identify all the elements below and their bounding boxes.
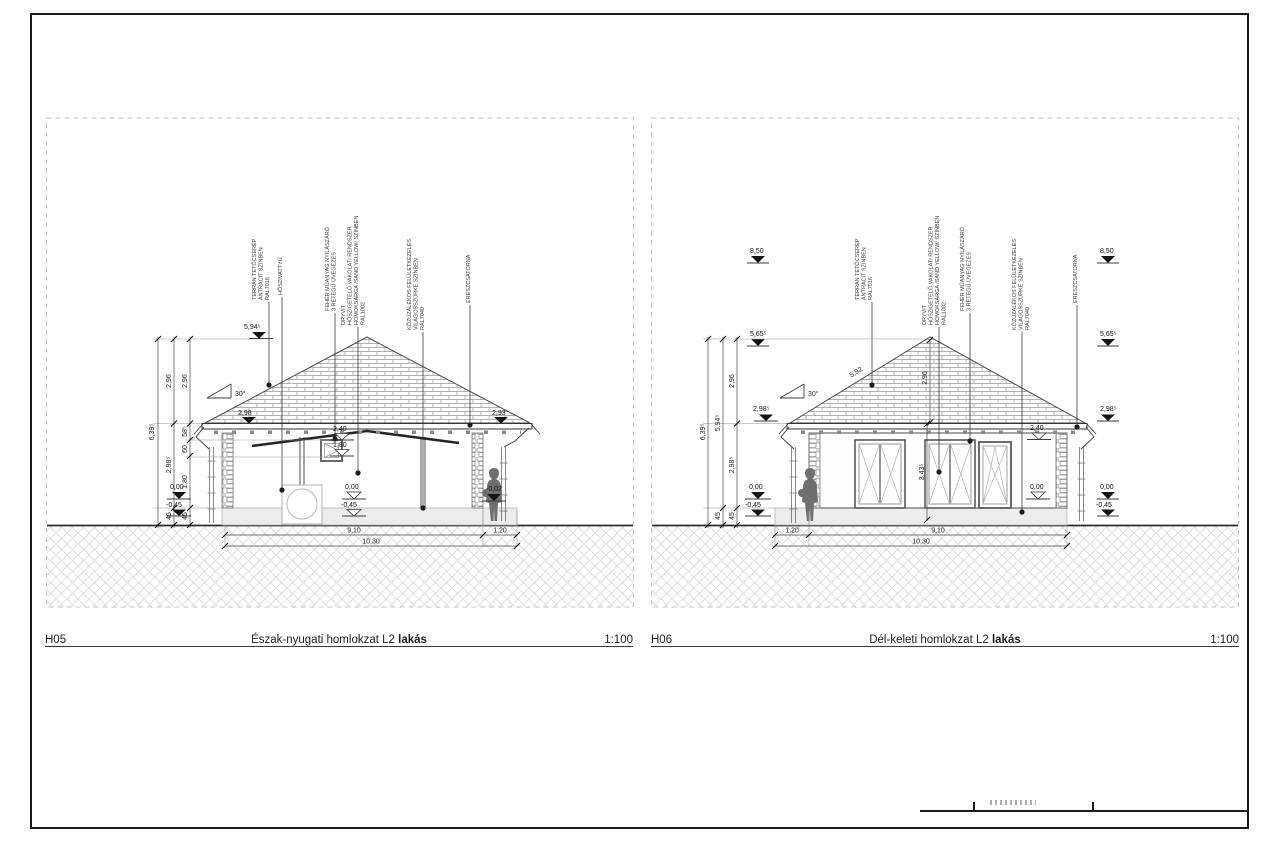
level-label: 2,40	[1030, 425, 1044, 432]
callout-line: DRYVIT	[922, 304, 928, 325]
callout-line: RAL1002	[361, 302, 367, 325]
dim-label: 2,98⁵	[166, 457, 173, 474]
roof-slope-symbol: 30°	[780, 384, 819, 398]
corner-column-right	[472, 433, 483, 508]
callout-line: RAL7040	[420, 307, 426, 330]
fascia-gutter	[202, 424, 532, 430]
roof-slope-length-label: 5,92	[849, 366, 864, 379]
level-marker-hmax-right: 8,50	[1097, 248, 1119, 263]
level-label: 2,98	[238, 410, 252, 417]
callout-line: DRYVIT	[341, 304, 347, 325]
fold-mark-tick	[1092, 802, 1094, 811]
level-label: 0,00	[345, 484, 359, 491]
dim-label: 9,10	[931, 528, 945, 535]
dim-label: 10,30	[362, 539, 380, 546]
level-marker-hmax-left: 8,50	[747, 248, 769, 263]
view-scale: 1:100	[543, 634, 633, 646]
dim-label: 5,94⁵	[715, 415, 722, 432]
dim-label: 58⁵	[182, 426, 189, 437]
callout-line: RAL7040	[1025, 307, 1031, 330]
view-title-suffix: lakás	[398, 634, 427, 646]
callout-window: FEHÉR MŰANYAG NYÍLÁSZÁRÓ 3 RÉTEGŰ ÜVEGEZ…	[324, 226, 338, 311]
view-title-suffix: lakás	[992, 634, 1021, 646]
level-label: 2,98⁵	[1100, 406, 1117, 413]
terrace-slab	[222, 508, 517, 525]
level-label: 2,93	[492, 410, 506, 417]
callout-line: KŐZÚZALÉKOS FELÜLETKEZELÉS	[1011, 239, 1018, 330]
dim-label: 10,30	[912, 539, 930, 546]
callout-gravel: KŐZÚZALÉKOS FELÜLETKEZELÉS VILÁGOSSZÜRKE…	[406, 239, 426, 330]
dim-label: 2,96	[922, 371, 929, 385]
level-label: -0,45	[341, 502, 357, 509]
callout-line: RAL1002	[942, 302, 948, 325]
view-code: H05	[45, 634, 135, 646]
callout-line: ANTRACIT SZÍNBEN	[258, 247, 265, 300]
level-label: 2,40	[333, 426, 347, 433]
callout-gravel: KŐZÚZALÉKOS FELÜLETKEZELÉS VILÁGOSSZÜRKE…	[1011, 239, 1031, 330]
callout-line: 3 RÉTEGŰ ÜVEGEZÉS	[966, 252, 973, 311]
heat-pump-unit	[282, 485, 322, 524]
corner-quoin-right	[1056, 433, 1067, 508]
level-label: 0,00	[749, 484, 763, 491]
dim-label: 1,80	[182, 475, 189, 489]
dim-label: 60	[182, 445, 189, 453]
view-scale: 1:100	[1149, 634, 1239, 646]
callout-line: VILÁGOSSZÜRKE SZÍNBEN	[413, 258, 420, 330]
view-title-text: Észak-nyugati homlokzat L2	[251, 634, 395, 646]
callout-line: FEHÉR MŰANYAG NYÍLÁSZÁRÓ	[324, 226, 331, 311]
roof	[779, 337, 1096, 435]
callout-line: TERRÁN TETŐCSERÉP	[854, 238, 861, 300]
level-label: 1,80	[333, 442, 347, 449]
level-label: 0,00	[1030, 484, 1044, 491]
dim-label: 2,96	[729, 374, 736, 388]
ground-hatch	[652, 527, 1238, 607]
corner-column-left	[222, 433, 233, 508]
slope-label: 30°	[235, 390, 246, 398]
callout-roof-tile: TERRÁN TETŐCSERÉP ANTRACIT SZÍNBEN RAL70…	[854, 238, 874, 300]
vertical-dimension-chains: 6,39⁵ 5,94⁵ 45 2,96 2,98⁵ 45	[700, 336, 740, 528]
view-title-text: Dél-keleti homlokzat L2	[869, 634, 989, 646]
level-marker-zero-left: 0,00 -0,45	[745, 484, 771, 516]
callout-line: ANTRACIT SZÍNBEN	[861, 247, 868, 300]
dim-label: 2,96	[166, 374, 173, 388]
callout-line: HOMOKSÁRGA /SAND YELLOW/ SZÍNBEN	[934, 216, 941, 325]
level-label: 5,65⁵	[1100, 331, 1117, 338]
callout-gutter: ERESZCSATORNA	[466, 254, 472, 303]
downspout-left	[196, 427, 216, 523]
elevation-view-h06: TERRÁN TETŐCSERÉP ANTRACIT SZÍNBEN RAL70…	[650, 115, 1240, 610]
level-label: 2,98⁵	[753, 406, 770, 413]
level-marker-upper-right: 5,65⁵	[1097, 331, 1119, 346]
downspout-right	[500, 428, 530, 521]
level-label: 0,00	[1100, 484, 1114, 491]
callout-plaster: DRYVIT HŐSZIGETELŐ VAKOLATI RENDSZER HOM…	[341, 216, 367, 325]
level-label: 5,94⁵	[244, 324, 261, 331]
callout-line: VILÁGOSSZÜRKE SZÍNBEN	[1018, 258, 1025, 330]
level-marker-zero-right: 0,00 -0,45	[1096, 484, 1119, 516]
view-title: Dél-keleti homlokzat L2 lakás	[741, 634, 1149, 646]
dim-label: 1,20	[493, 528, 507, 535]
dim-label: 2,98⁵	[729, 457, 736, 474]
dim-label: 45	[715, 512, 722, 520]
dim-label: 3,43⁵	[919, 464, 926, 481]
roof-tile-surface	[790, 337, 1085, 423]
dim-label: 45	[182, 512, 189, 520]
dim-label: 45	[729, 512, 736, 520]
view-code: H06	[651, 634, 741, 646]
title-bar-h06: H06 Dél-keleti homlokzat L2 lakás 1:100	[651, 629, 1239, 647]
fold-mark-tick	[973, 802, 975, 811]
level-label: 8,50	[750, 248, 764, 255]
callout-line: RAL7016	[265, 277, 271, 300]
callout-line: RAL7016	[868, 277, 874, 300]
french-door-1	[855, 440, 905, 508]
callout-window: FEHÉR MŰANYAG NYÍLÁSZÁRÓ 3 RÉTEGŰ ÜVEGEZ…	[959, 226, 973, 311]
slope-label: 30°	[808, 390, 819, 398]
downspout-right	[1078, 427, 1095, 521]
callout-roof-tile: TERRÁN TETŐCSERÉP ANTRACIT SZÍNBEN RAL70…	[251, 238, 271, 300]
rafter-ends	[211, 431, 521, 435]
dim-label: 9,10	[347, 528, 361, 535]
dim-label: 6,39⁵	[700, 424, 707, 441]
level-marker-upper-left: 5,65⁵	[747, 331, 769, 346]
dim-label: 6,39⁵	[149, 424, 156, 441]
level-label: -0,02	[486, 486, 502, 493]
level-marker-eave-right: 2,98⁵	[1097, 406, 1119, 421]
callout-line: TERRÁN TETŐCSERÉP	[251, 238, 258, 300]
fold-mark-line	[920, 810, 1247, 812]
view-title: Észak-nyugati homlokzat L2 lakás	[135, 634, 543, 646]
elevation-view-h05: TERRÁN TETŐCSERÉP ANTRACIT SZÍNBEN RAL70…	[45, 115, 635, 610]
roof-slope-symbol: 30°	[207, 384, 246, 398]
roof-tile-surface	[205, 337, 530, 423]
dim-label: 45	[166, 512, 173, 520]
callout-plaster: DRYVIT HŐSZIGETELŐ VAKOLATI RENDSZER HOM…	[922, 216, 948, 325]
callout-line: HŐSZIGETELŐ VAKOLATI RENDSZER	[928, 226, 935, 325]
dim-label: 2,96	[182, 374, 189, 388]
ground-hatch	[47, 527, 633, 607]
callout-line: HŐSZIGETELŐ VAKOLATI RENDSZER	[347, 226, 354, 325]
dim-label: 1,20	[785, 528, 799, 535]
french-door-2	[925, 440, 975, 508]
level-label: -0,45	[1096, 502, 1112, 509]
callout-heat-pump: HŐSZIVATTYÚ	[277, 257, 284, 295]
title-bar-h05: H05 Észak-nyugati homlokzat L2 lakás 1:1…	[45, 629, 633, 647]
callout-line: KŐZÚZALÉKOS FELÜLETKEZELÉS	[406, 239, 413, 330]
callout-line: 3 RÉTEGŰ ÜVEGEZÉS	[331, 252, 338, 311]
drawing-sheet: { "sheet": { "frame_color": "#1a1a1a", "…	[0, 0, 1280, 844]
micro-stamp	[990, 800, 1036, 805]
level-label: 8,50	[1100, 248, 1114, 255]
level-marker-eave-left: 2,98⁵	[753, 406, 778, 421]
callout-gutter: ERESZCSATORNA	[1073, 254, 1079, 303]
callout-line: FEHÉR MŰANYAG NYÍLÁSZÁRÓ	[959, 226, 966, 311]
level-label: 5,65⁵	[750, 331, 767, 338]
tilt-turn-window	[979, 442, 1011, 508]
callout-line: HOMOKSÁRGA /SAND YELLOW/ SZÍNBEN	[353, 216, 360, 325]
